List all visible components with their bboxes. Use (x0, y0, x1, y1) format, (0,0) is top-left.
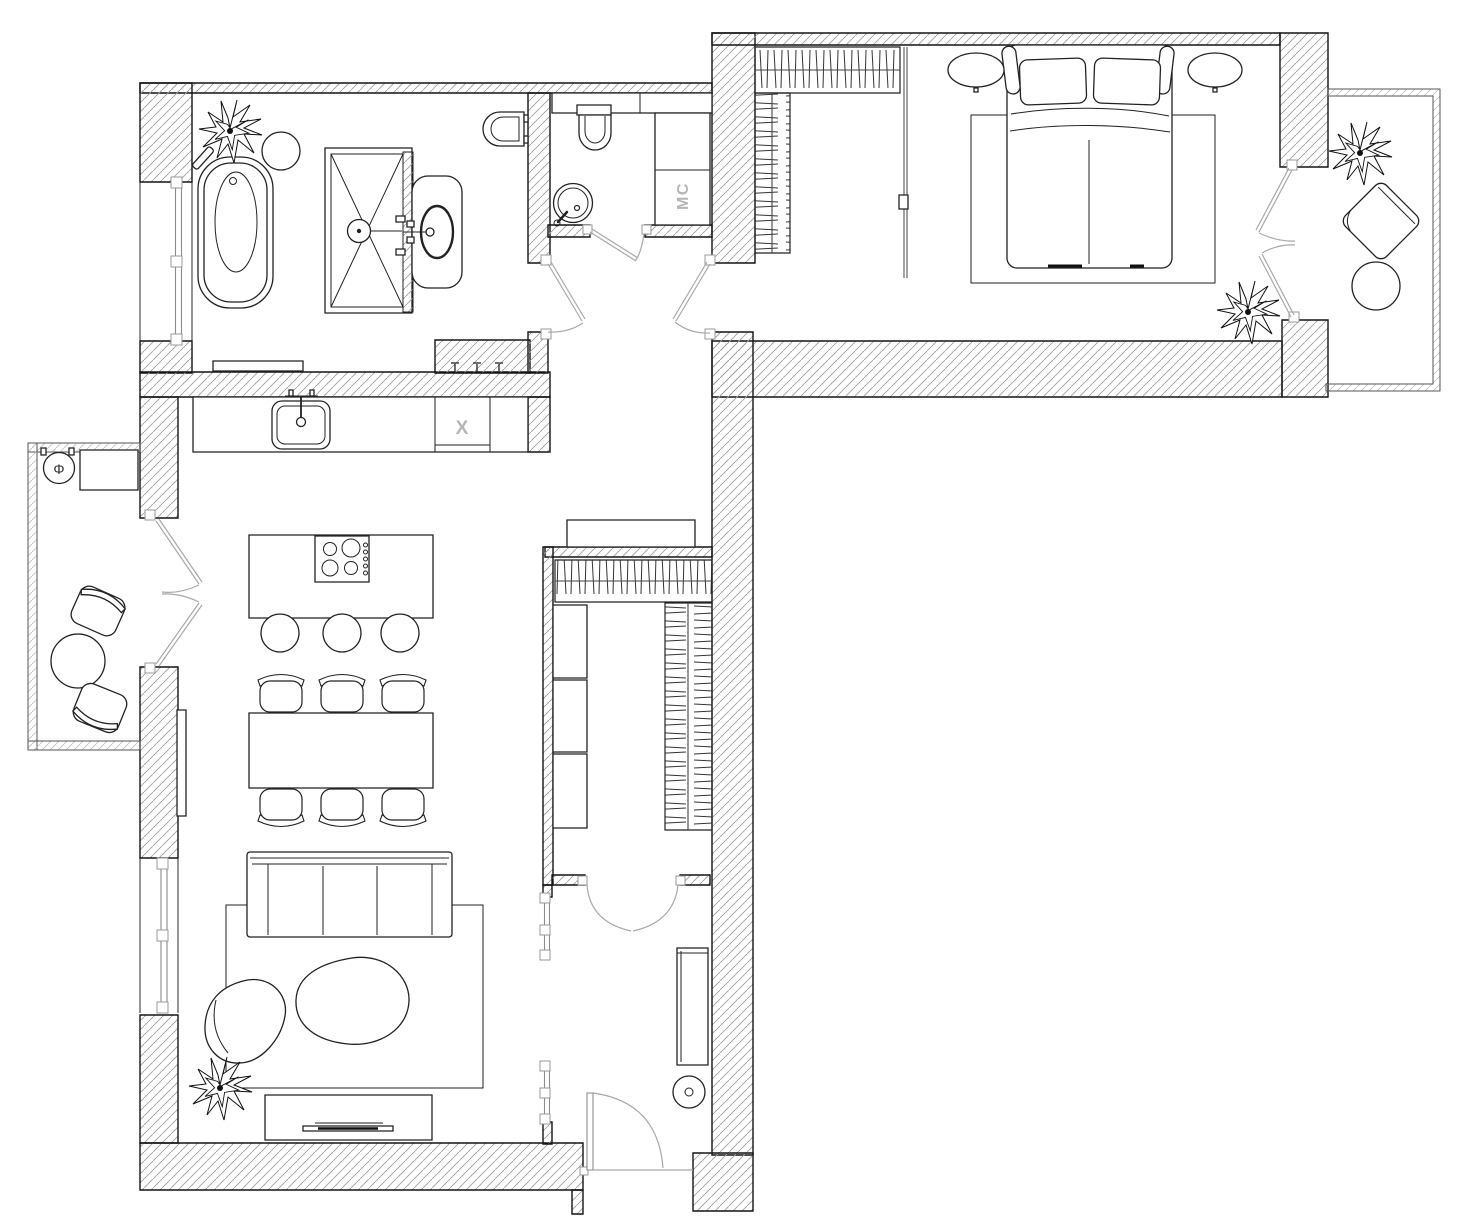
bathroom-window (140, 177, 192, 345)
wall-wc-south-right (645, 225, 712, 237)
cooktop (315, 536, 369, 582)
balcony-left-wall-bottom (28, 741, 140, 750)
balcony-left-wall-west (28, 443, 37, 750)
armchair (205, 980, 286, 1064)
dining-chair (380, 789, 426, 827)
bathroom (192, 100, 528, 372)
shower-cabin (325, 148, 413, 313)
bathtub (192, 146, 273, 308)
wall-bedroom-west (712, 33, 755, 263)
balcony-right-french-door (1256, 160, 1299, 322)
double-bed (1001, 45, 1175, 268)
nightstand-left (948, 53, 1004, 92)
wc-shelf (552, 93, 712, 113)
washing-machine-label: MC (675, 182, 692, 210)
wall-bath-wc-divider (528, 93, 550, 263)
balcony-left: Φ (41, 448, 138, 736)
balcony-chair (70, 680, 129, 735)
lounge-chair (296, 957, 409, 1044)
wall-closet-north (545, 547, 712, 557)
radiator (177, 710, 186, 816)
wc-door (583, 225, 651, 261)
wall-hung-toilet (577, 105, 611, 150)
balcony-chair (68, 583, 128, 639)
wall-closet-west (543, 547, 553, 885)
dining-chair (380, 675, 426, 713)
wall-living-south (140, 1143, 583, 1190)
bedroom-door (673, 255, 715, 339)
nightstand-right (1188, 53, 1242, 92)
entry-door (580, 1093, 693, 1175)
entry-hall (673, 948, 708, 1108)
wall-west-living-upper (140, 667, 178, 858)
kitchen-counter: X (193, 390, 528, 452)
balcony-right (1329, 122, 1422, 310)
console (677, 948, 708, 1065)
wall-bathroom-shaft (435, 340, 530, 373)
floor-plan-canvas: MC X (0, 0, 1466, 1232)
wall-entry-se-block (693, 1153, 753, 1211)
round-mirror (673, 1076, 705, 1108)
dining-table (249, 713, 433, 788)
wall-bedroom-south (712, 341, 1282, 397)
walk-in-closet (553, 520, 712, 830)
dishwasher-label: X (456, 418, 469, 439)
dining-set (249, 675, 433, 827)
plant-symbol (1329, 122, 1392, 185)
washer-column: MC (655, 113, 710, 225)
dining-chair (258, 675, 304, 713)
bar-stool (261, 614, 299, 652)
plant-symbol (189, 1057, 252, 1120)
wall-entry-west-stub-bottom (543, 1122, 552, 1144)
entry-door-leaf (587, 1093, 593, 1170)
wall-entry-step (572, 1190, 583, 1214)
bar-stool (323, 614, 361, 652)
drain-label: Φ (53, 461, 64, 477)
hall-cabinet (567, 520, 695, 547)
round-sink (554, 184, 593, 227)
balcony-left-french-door (145, 510, 202, 673)
sofa (247, 852, 452, 937)
kitchen: X (177, 390, 528, 827)
floor-plan-drawing: MC X (0, 0, 1466, 1232)
balcony-table (51, 634, 105, 688)
living-window (140, 858, 178, 1013)
wall-west-pier-mid (140, 341, 192, 373)
wall-counter-strip (528, 397, 550, 452)
bathroom-door (541, 255, 585, 339)
wall-top-bath-wc (140, 83, 712, 93)
wall-bedroom-se-pier (1282, 320, 1328, 397)
wardrobe (755, 47, 900, 253)
living-room (189, 852, 483, 1140)
balcony-round-table (1352, 262, 1400, 310)
wc-room: MC (552, 93, 712, 226)
wall-west-kitchen (140, 397, 178, 518)
wall-west-living-lower (140, 1015, 178, 1143)
dining-chair (319, 675, 365, 713)
balcony-lounge-chair (1340, 180, 1422, 262)
hanging-rail-right (665, 603, 712, 830)
tv-stand (265, 1095, 432, 1140)
bench (213, 361, 303, 371)
pillow (1093, 58, 1161, 105)
vanity-sink (403, 176, 462, 288)
island (249, 535, 433, 652)
wall-bedroom-north (712, 33, 1280, 45)
closet-double-door (578, 876, 685, 931)
dining-chair (258, 789, 304, 827)
wall-bedroom-ne-pier (1280, 33, 1328, 167)
stool (262, 132, 300, 170)
shelf-column (553, 605, 587, 828)
toilet (483, 112, 528, 146)
balcony-bench (80, 450, 138, 490)
bedroom (755, 45, 1280, 344)
plant-symbol (1217, 281, 1280, 344)
wall-bathroom-south (140, 372, 550, 397)
wall-west-pier-top (140, 83, 192, 182)
dining-chair (319, 789, 365, 827)
entry-glass-partition (540, 893, 550, 1124)
floor-drain: Φ (41, 448, 75, 484)
bar-stool (381, 614, 419, 652)
hanging-rail-top (555, 560, 712, 602)
pillow (1019, 58, 1087, 105)
wall-hall-east (712, 332, 753, 1155)
